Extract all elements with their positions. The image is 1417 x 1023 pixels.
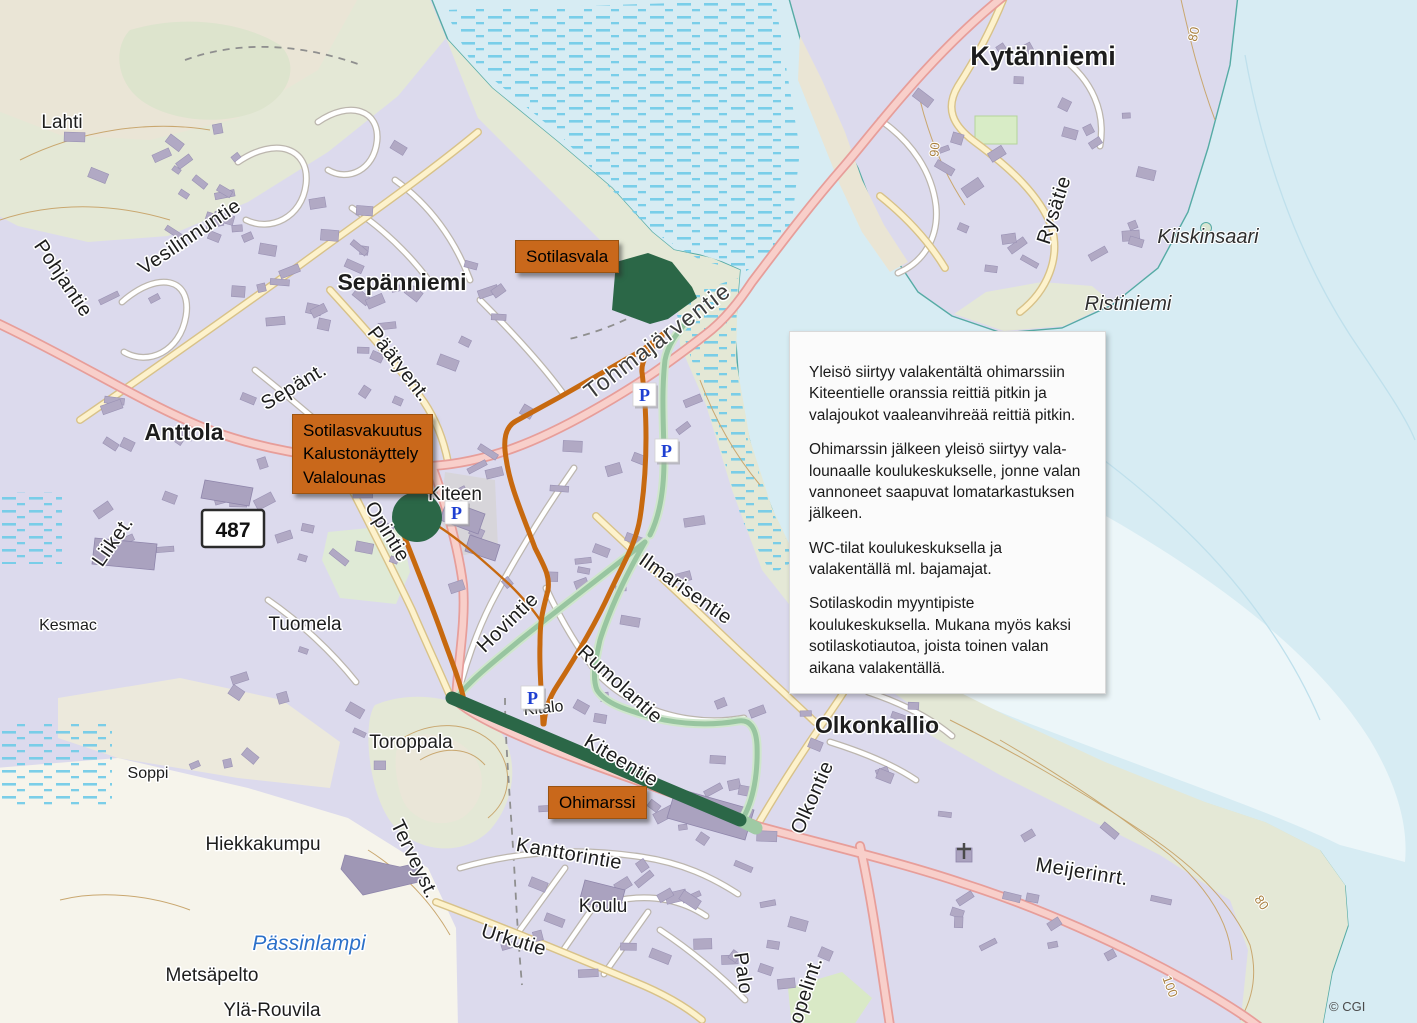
map-label: Lahti [41,112,82,133]
contour-label: 80 [1185,25,1203,42]
road-shield-487: 487 [202,510,264,547]
annotation-line: Sotilasvakuutus [303,419,422,442]
annotation-line: Valalounas [303,466,422,489]
info-paragraph: WC-tilat koulukeskuksella ja valakentäll… [809,538,1087,581]
info-paragraph: Sotilaskodin myyntipiste koulukeskuksell… [809,593,1087,679]
parking-icon: P [655,439,680,465]
svg-text:P: P [451,503,462,523]
map-label: Tuomela [268,614,342,635]
map-label: Kytänniemi [970,41,1116,71]
map-label: Soppi [128,765,169,782]
info-paragraph: Ohimarssin jälkeen yleisö siirtyy vala­l… [809,439,1087,525]
map-label: Anttola [144,419,223,445]
parking-icon: P [445,501,470,527]
map-label: Sepänniemi [337,269,466,295]
sotilasvakuutus-label: SotilasvakuutusKalustonäyttelyValalounas [292,414,433,494]
map-svg: 487 LahtiPohjantieVesilinnuntieSepänniem… [0,0,1417,1023]
annotation-line: Ohimarssi [559,791,636,814]
svg-text:P: P [527,688,538,708]
parking-icon: P [633,383,658,409]
map-label: Kesmac [39,617,97,634]
map-label: Pässinlampi [252,932,367,955]
annotation-line: Kalustonäyttely [303,442,422,465]
ohimarssi-label: Ohimarssi [548,786,647,819]
road-shield-number: 487 [215,519,250,542]
parking-icon: P [521,686,546,712]
info-paragraph: Yleisö siirtyy valakentältä ohimarssiin … [809,362,1087,426]
sotilasvala-label: Sotilasvala [515,240,619,273]
svg-text:P: P [639,385,650,405]
svg-text:P: P [661,441,672,461]
map-label: Ylä-Rouvila [223,1000,321,1021]
map-label: Hiekkakumpu [205,834,320,855]
map-label: Toroppala [369,732,453,753]
annotation-line: Sotilasvala [526,245,608,268]
map-label: Kiiskinsaari [1157,226,1259,248]
map-canvas[interactable]: 487 LahtiPohjantieVesilinnuntieSepänniem… [0,0,1417,1023]
contour-label: 90 [926,142,942,158]
map-label: Koulu [579,896,628,917]
map-label: Metsäpelto [166,965,259,986]
info-box: Yleisö siirtyy valakentältä ohimarssiin … [789,331,1106,694]
map-attribution: © CGI [1329,999,1365,1014]
map-label: Olkonkallio [815,712,939,738]
map-label: Ristiniemi [1085,293,1172,315]
